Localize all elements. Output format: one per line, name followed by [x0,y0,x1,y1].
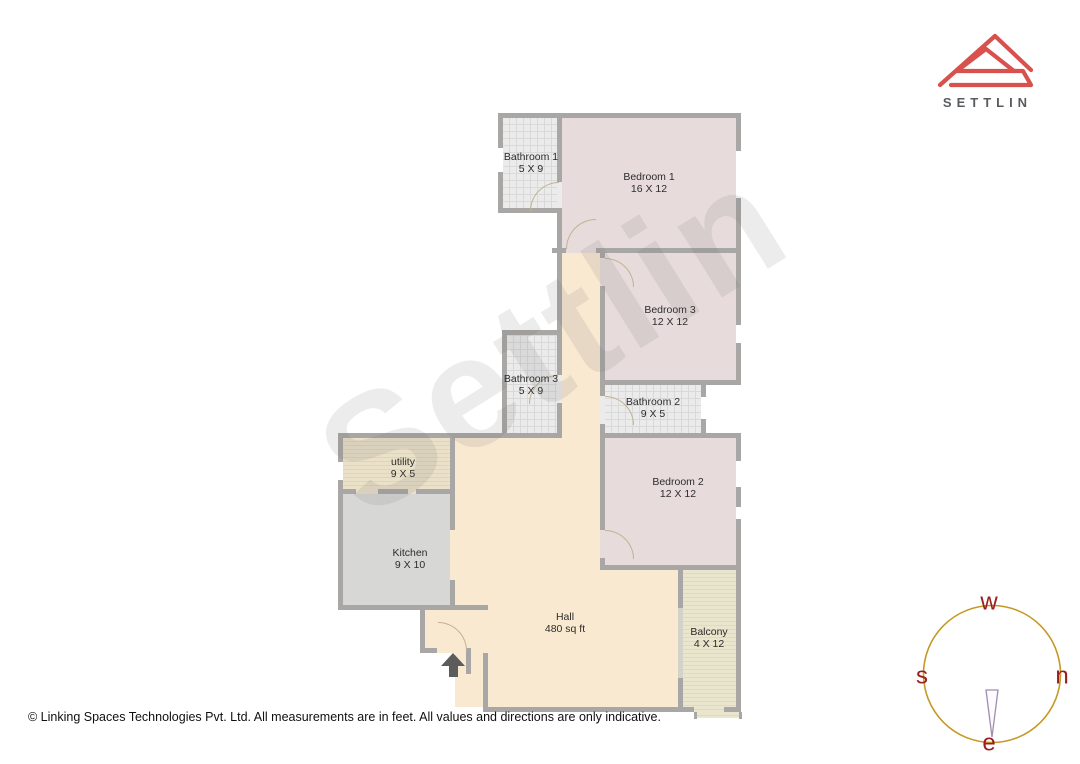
wall [600,565,741,570]
room-dimensions: 4 X 12 [690,639,727,651]
room-label-bedroom-1: Bedroom 116 X 12 [623,172,674,195]
wall [600,424,605,530]
wall [502,330,562,335]
wall [694,712,697,719]
room-label-bathroom-2: Bathroom 29 X 5 [626,397,680,420]
room-label-bathroom-1: Bathroom 15 X 9 [504,152,558,175]
wall [466,648,471,674]
wall [338,605,488,610]
wall [739,712,742,719]
room-dimensions: 12 X 12 [652,489,703,501]
room-name: Bedroom 2 [652,477,703,489]
room-corridor [562,253,600,438]
wall [483,653,488,712]
wall [498,172,503,213]
wall [557,208,562,375]
room-name: Bathroom 3 [504,374,558,386]
door-opening [356,489,378,494]
room-label-bathroom-3: Bathroom 35 X 9 [504,374,558,397]
wall [736,113,741,151]
room-label-bedroom-3: Bedroom 312 X 12 [644,305,695,328]
floorplan-page: Bathroom 15 X 9Bedroom 116 X 12Bedroom 3… [0,0,1080,764]
room-dimensions: 480 sq ft [545,624,585,636]
brand-name: SETTLIN [931,95,1039,110]
room-dimensions: 9 X 5 [626,409,680,421]
wall [678,678,683,712]
room-name: Hall [545,612,585,624]
wall [736,487,741,507]
compass-label-south: s [916,663,928,690]
wall [338,480,343,605]
room-label-hall-main: Hall480 sq ft [545,612,585,635]
wall [450,433,455,530]
room-label-bedroom-2: Bedroom 212 X 12 [652,477,703,500]
room-label-kitchen: Kitchen9 X 10 [392,548,427,571]
footer-disclaimer: © Linking Spaces Technologies Pvt. Ltd. … [28,710,661,724]
wall [450,580,455,605]
wall [420,605,425,650]
room-hall-main [455,570,678,707]
settlin-house-icon [935,30,1036,90]
wall [736,343,741,385]
entrance-arrow-icon [441,653,465,677]
glass-wall [678,608,683,678]
settlin-logo: SETTLIN [931,30,1039,110]
wall [498,113,741,118]
room-dimensions: 16 X 12 [623,184,674,196]
wall [600,433,741,438]
wall [600,286,605,396]
wall [736,198,741,325]
room-dimensions: 9 X 10 [392,560,427,572]
compass-label-north: n [1055,663,1068,690]
wall [338,433,343,462]
wall [378,489,408,494]
room-balcony-ledge [696,712,742,718]
room-label-balcony: Balcony4 X 12 [690,627,727,650]
wall [498,113,503,148]
room-dimensions: 12 X 12 [644,317,695,329]
room-name: Bedroom 1 [623,172,674,184]
room-name: Bathroom 1 [504,152,558,164]
door-opening [701,397,706,419]
wall [557,403,562,438]
wall [600,380,741,385]
wall [736,438,741,461]
arrow-head [441,653,465,666]
compass-label-west: w [979,589,998,616]
room-kitchen-doorway [450,530,455,580]
room-dimensions: 9 X 5 [391,469,416,481]
compass-label-east: e [982,730,995,757]
room-dimensions: 5 X 9 [504,164,558,176]
room-name: Balcony [690,627,727,639]
room-hall-upper [455,438,600,570]
room-name: Kitchen [392,548,427,560]
wall [678,565,683,608]
room-name: utility [391,457,416,469]
room-name: Bathroom 2 [626,397,680,409]
arrow-shaft [449,666,458,677]
wall [736,519,741,712]
room-dimensions: 5 X 9 [504,386,558,398]
wall [596,248,741,253]
room-name: Bedroom 3 [644,305,695,317]
wall [600,558,605,570]
wall [701,419,706,438]
room-label-utility: utility9 X 5 [391,457,416,480]
door-opening [408,489,416,494]
compass-rose: w n s e [910,585,1080,764]
wall [701,385,706,397]
